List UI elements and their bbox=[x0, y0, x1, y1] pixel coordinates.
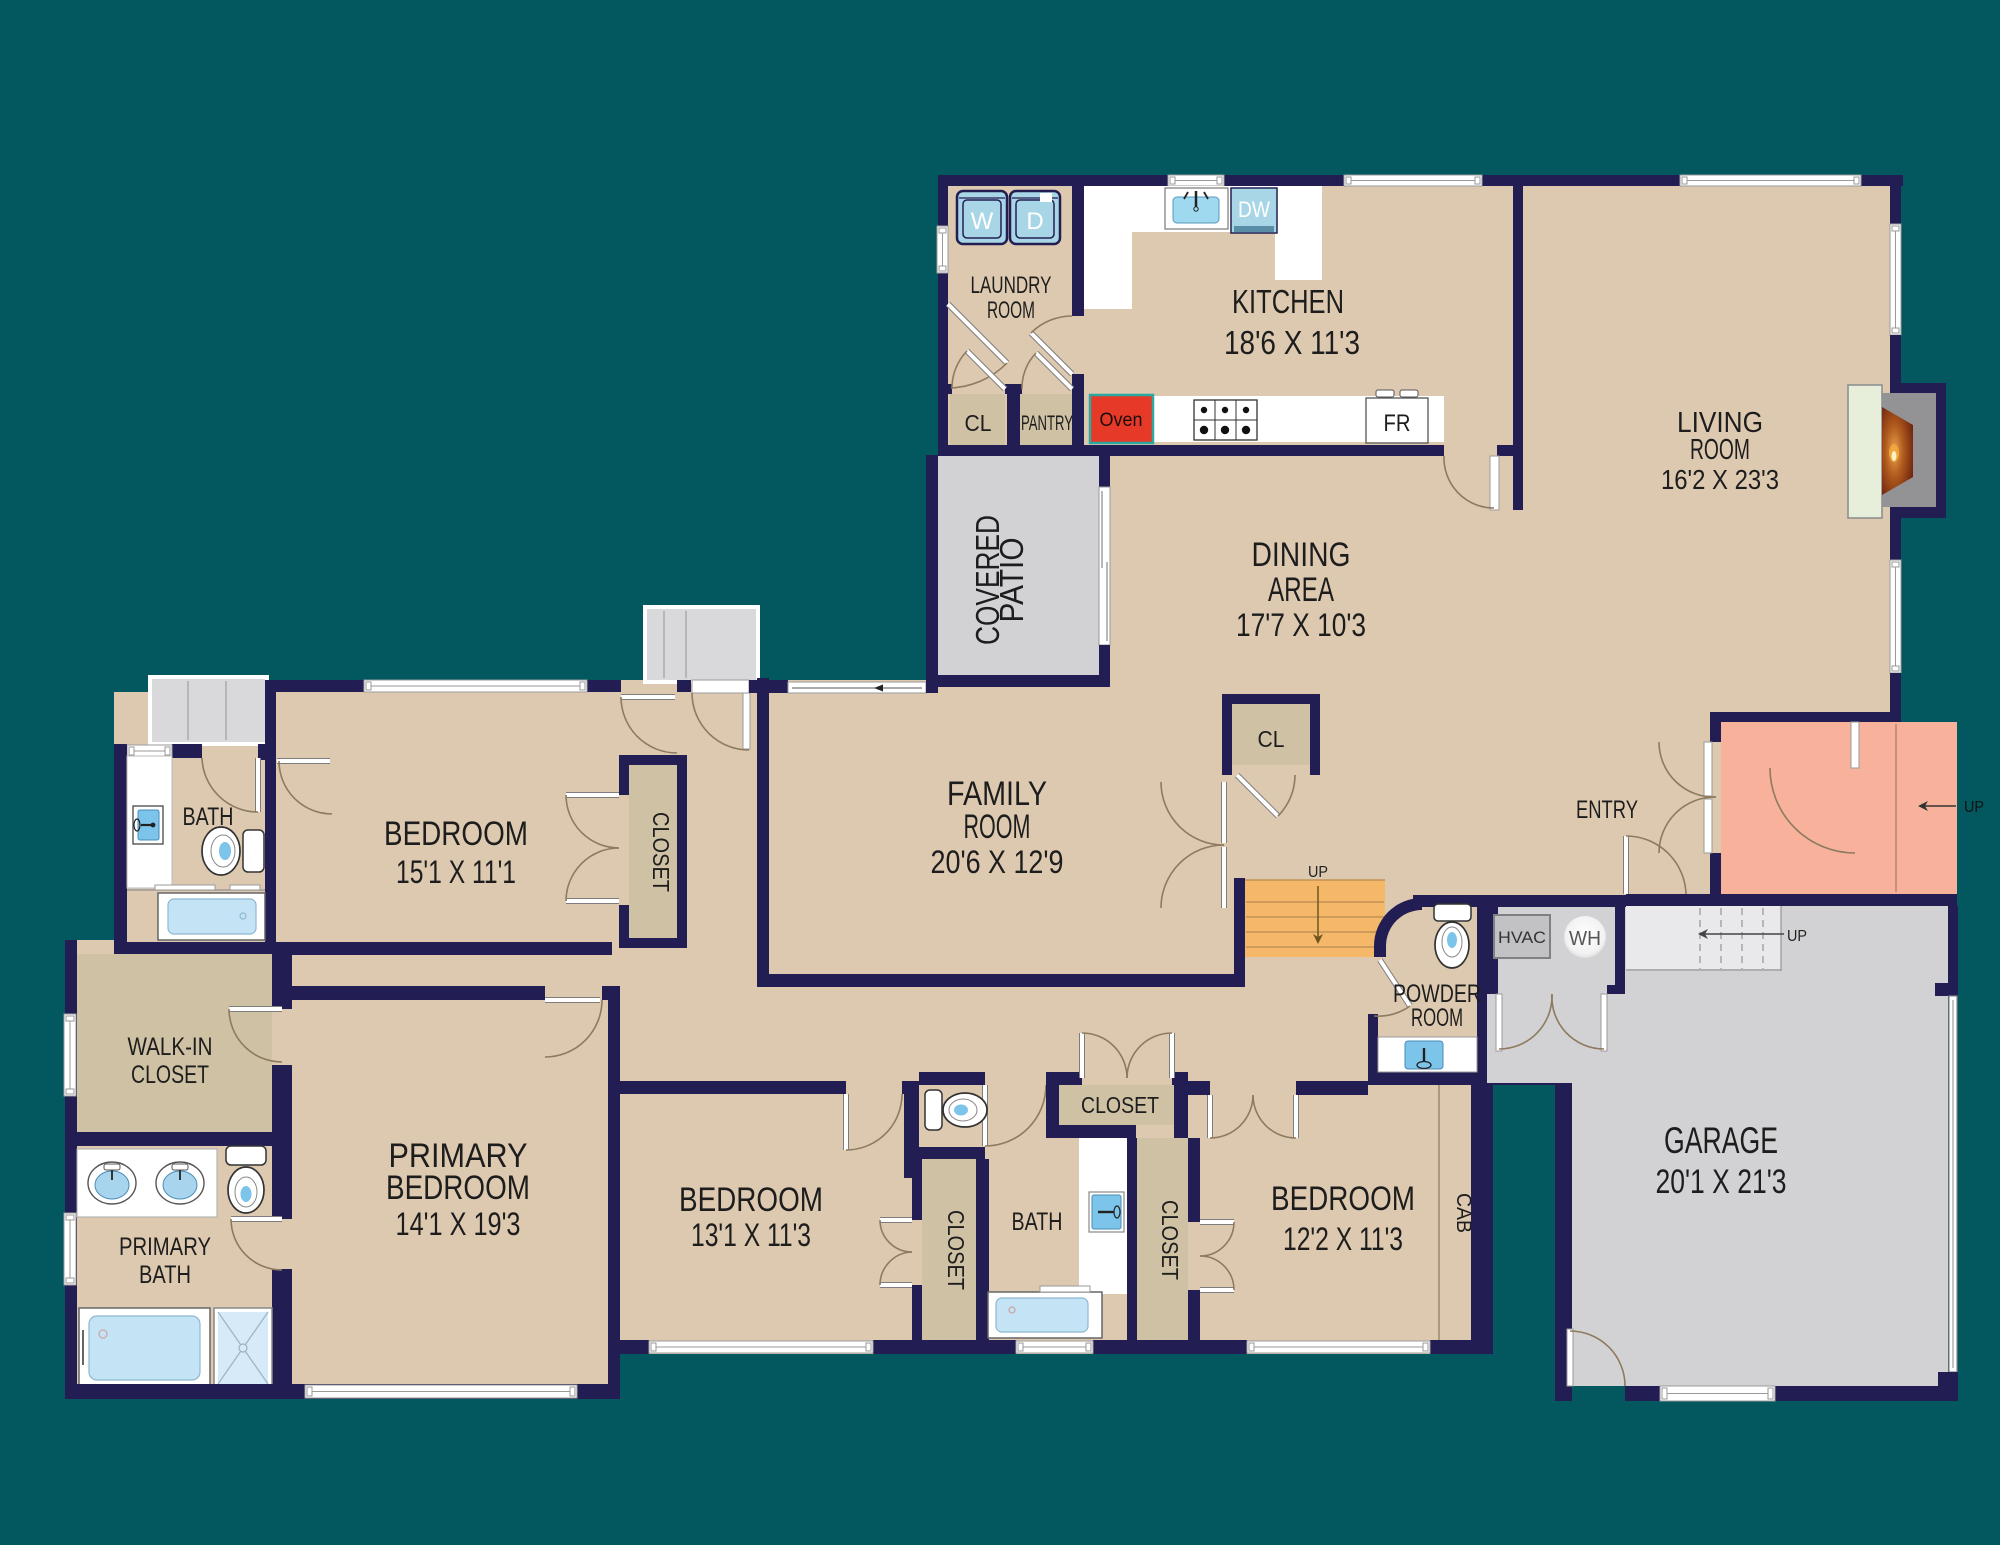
svg-text:ROOM: ROOM bbox=[1411, 1004, 1463, 1032]
svg-text:14'1 X 19'3: 14'1 X 19'3 bbox=[396, 1206, 521, 1242]
svg-text:15'1 X 11'1: 15'1 X 11'1 bbox=[396, 854, 516, 890]
svg-text:18'6 X 11'3: 18'6 X 11'3 bbox=[1224, 324, 1360, 361]
svg-text:ROOM: ROOM bbox=[1690, 434, 1750, 466]
svg-text:13'1 X 11'3: 13'1 X 11'3 bbox=[691, 1217, 811, 1253]
svg-text:DW: DW bbox=[1238, 197, 1270, 222]
svg-text:ROOM: ROOM bbox=[964, 808, 1031, 846]
svg-text:BEDROOM: BEDROOM bbox=[384, 815, 528, 853]
svg-text:UP: UP bbox=[1964, 799, 1984, 816]
svg-text:CL: CL bbox=[1258, 726, 1285, 752]
svg-text:AREA: AREA bbox=[1268, 571, 1334, 609]
svg-text:DINING: DINING bbox=[1252, 536, 1351, 574]
svg-text:FR: FR bbox=[1384, 410, 1411, 437]
svg-text:UP: UP bbox=[1308, 864, 1328, 881]
svg-text:17'7 X 10'3: 17'7 X 10'3 bbox=[1236, 607, 1366, 643]
svg-text:20'1 X 21'3: 20'1 X 21'3 bbox=[1656, 1163, 1787, 1201]
svg-text:BATH: BATH bbox=[1012, 1208, 1063, 1236]
svg-text:Oven: Oven bbox=[1100, 410, 1143, 431]
svg-text:BEDROOM: BEDROOM bbox=[679, 1181, 823, 1219]
svg-text:BEDROOM: BEDROOM bbox=[386, 1169, 530, 1207]
svg-text:KITCHEN: KITCHEN bbox=[1232, 283, 1344, 320]
svg-text:PRIMARY: PRIMARY bbox=[119, 1233, 211, 1261]
svg-text:CLOSET: CLOSET bbox=[1157, 1200, 1183, 1280]
svg-text:WH: WH bbox=[1569, 928, 1601, 950]
svg-text:PATIO: PATIO bbox=[993, 538, 1030, 623]
svg-text:WALK-IN: WALK-IN bbox=[128, 1033, 213, 1061]
svg-text:CLOSET: CLOSET bbox=[131, 1061, 209, 1089]
svg-text:CL: CL bbox=[965, 410, 992, 436]
svg-text:W: W bbox=[971, 208, 994, 235]
svg-text:D: D bbox=[1026, 208, 1043, 235]
svg-text:16'2 X 23'3: 16'2 X 23'3 bbox=[1661, 464, 1779, 495]
svg-text:CLOSET: CLOSET bbox=[943, 1210, 969, 1290]
svg-text:PANTRY: PANTRY bbox=[1021, 412, 1073, 435]
svg-text:HVAC: HVAC bbox=[1498, 928, 1546, 947]
svg-text:ROOM: ROOM bbox=[987, 297, 1035, 324]
svg-text:GARAGE: GARAGE bbox=[1664, 1120, 1778, 1161]
svg-text:12'2 X 11'3: 12'2 X 11'3 bbox=[1283, 1221, 1403, 1257]
svg-text:BATH: BATH bbox=[139, 1261, 191, 1289]
svg-text:BATH: BATH bbox=[183, 803, 234, 831]
svg-text:20'6 X 12'9: 20'6 X 12'9 bbox=[931, 844, 1064, 880]
svg-text:BEDROOM: BEDROOM bbox=[1271, 1180, 1415, 1218]
svg-text:ENTRY: ENTRY bbox=[1576, 796, 1638, 824]
svg-text:LAUNDRY: LAUNDRY bbox=[971, 272, 1052, 299]
svg-text:CLOSET: CLOSET bbox=[1081, 1092, 1159, 1118]
svg-text:CLOSET: CLOSET bbox=[648, 812, 674, 892]
svg-text:UP: UP bbox=[1787, 928, 1807, 945]
